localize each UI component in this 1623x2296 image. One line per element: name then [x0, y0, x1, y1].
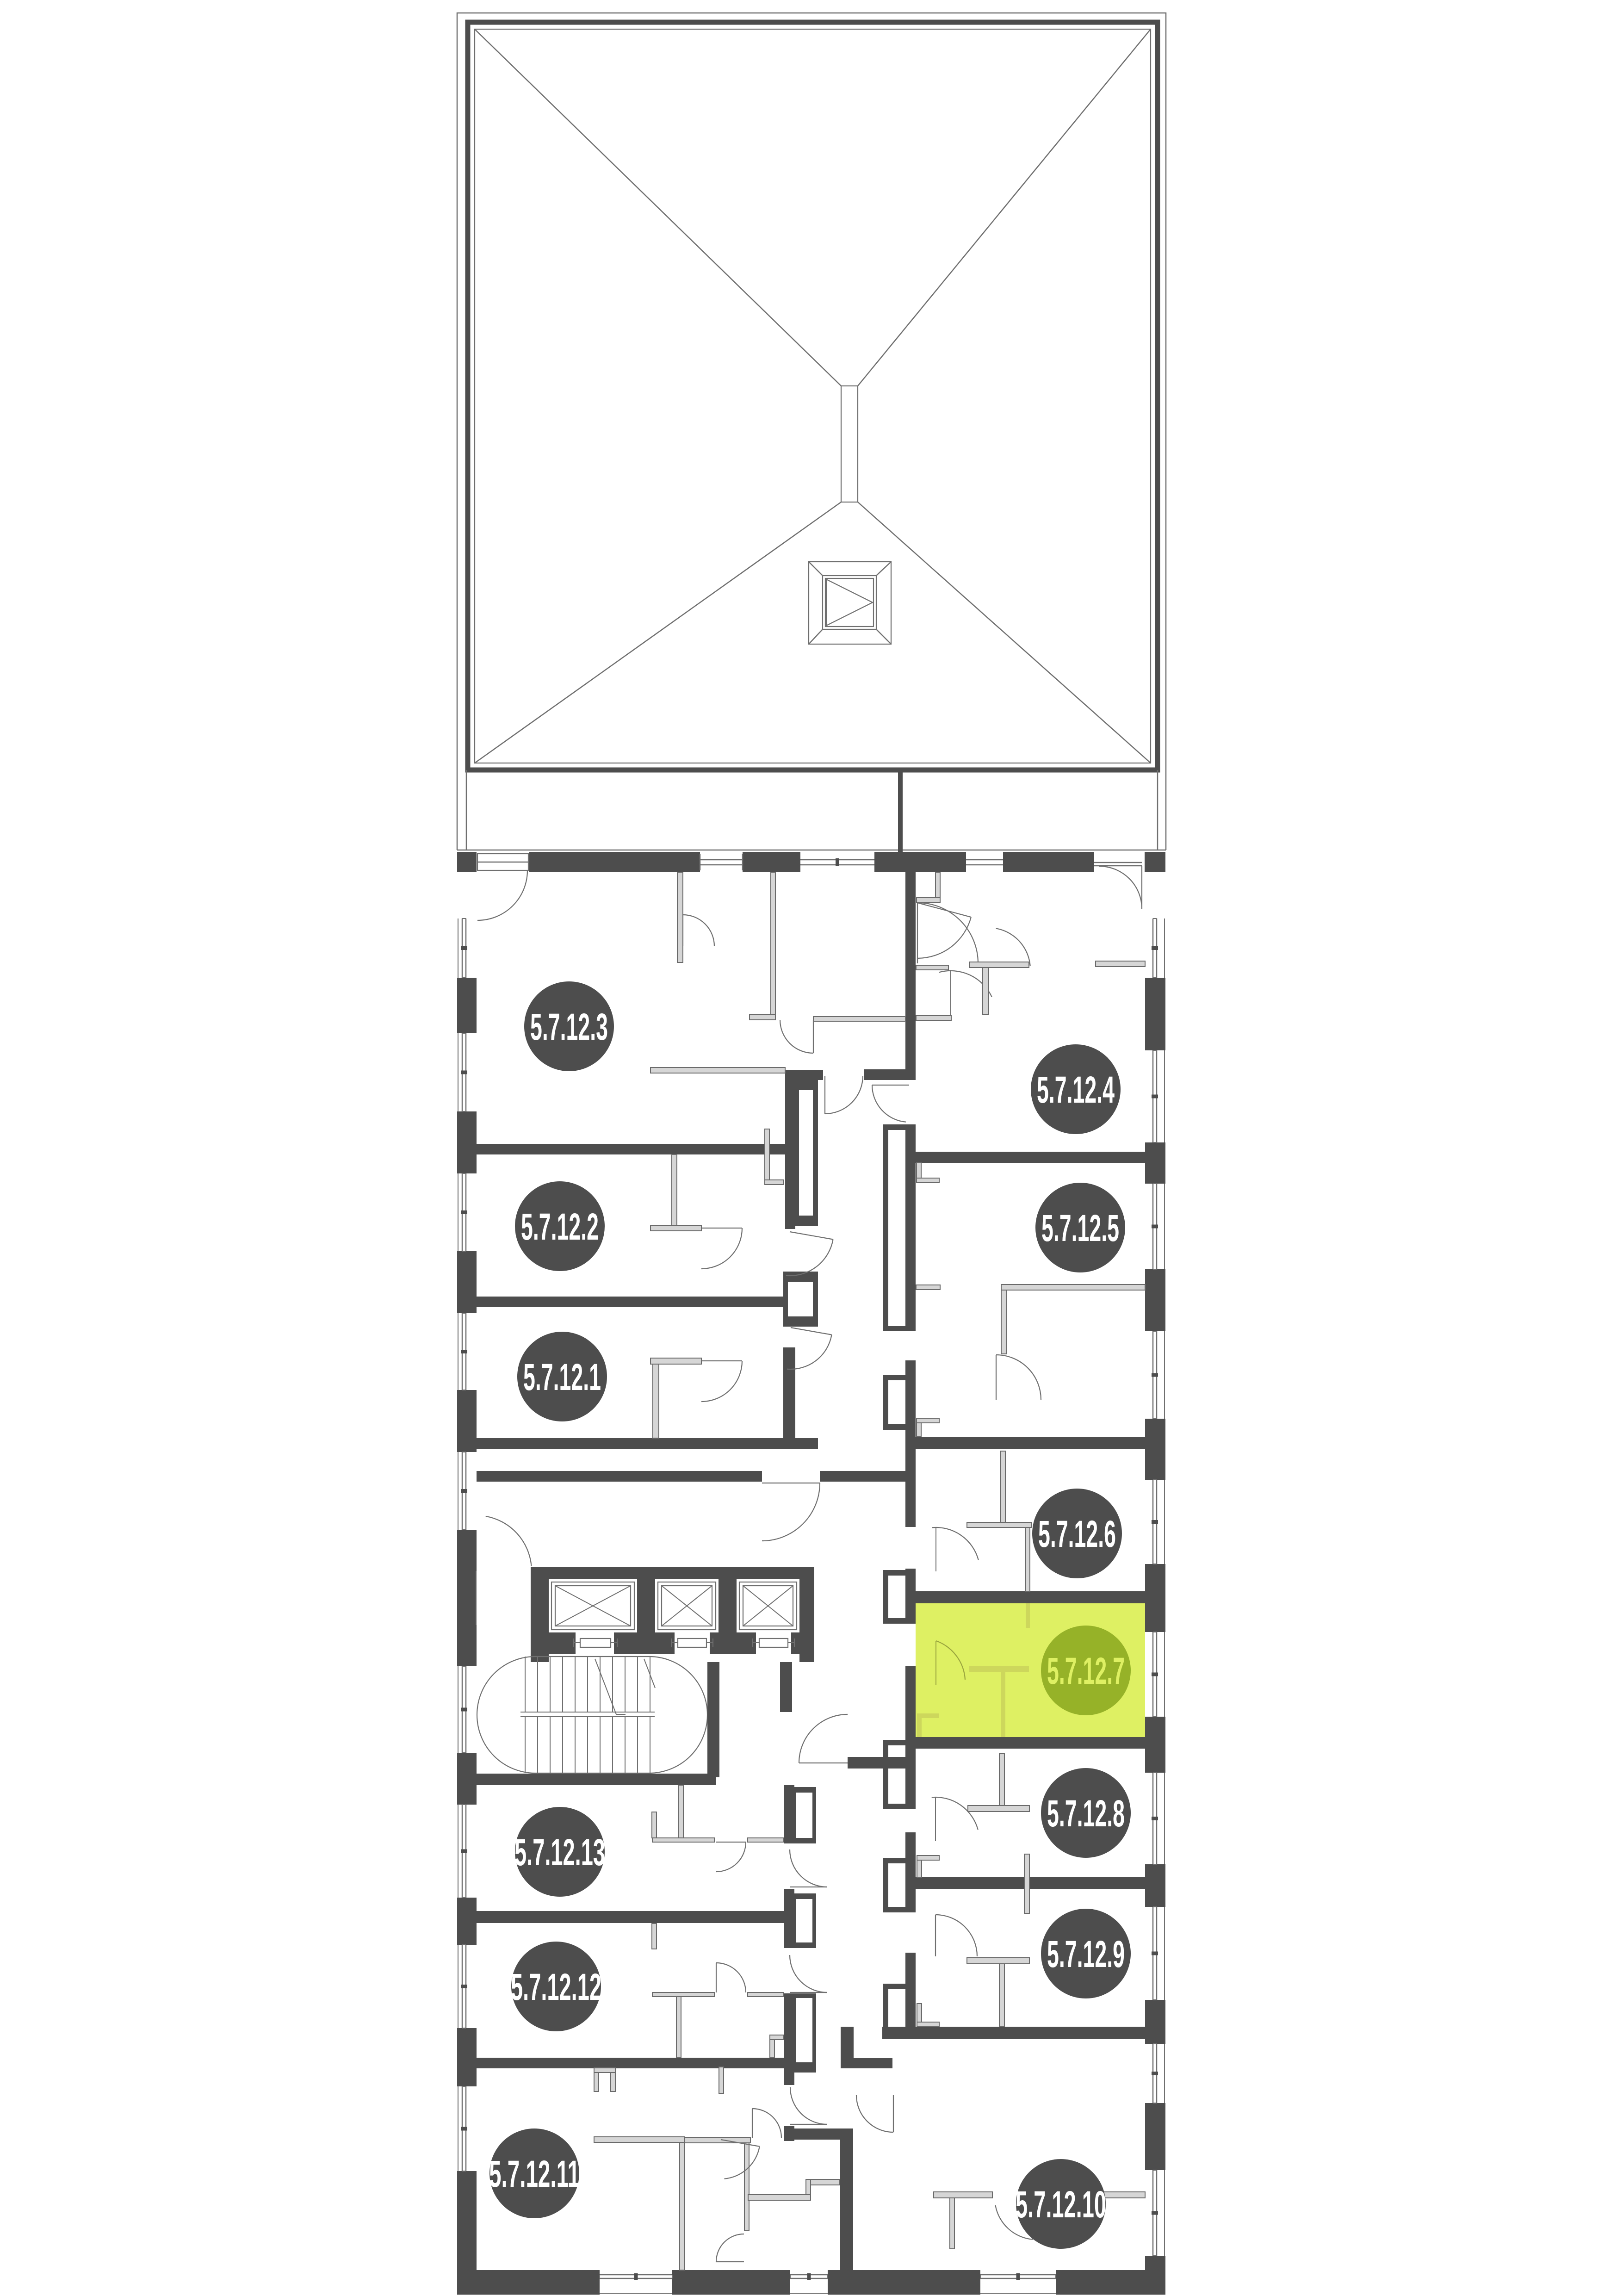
svg-text:5.7.12.8: 5.7.12.8 [1047, 1793, 1125, 1835]
svg-text:5.7.12.4: 5.7.12.4 [1037, 1069, 1115, 1111]
svg-text:5.7.12.11: 5.7.12.11 [489, 2153, 580, 2195]
svg-text:5.7.12.3: 5.7.12.3 [530, 1006, 608, 1048]
svg-text:5.7.12.1: 5.7.12.1 [523, 1356, 601, 1398]
svg-text:5.7.12.7: 5.7.12.7 [1047, 1650, 1125, 1692]
svg-text:5.7.12.12: 5.7.12.12 [511, 1966, 601, 2008]
svg-text:5.7.12.2: 5.7.12.2 [521, 1206, 599, 1248]
svg-text:5.7.12.13: 5.7.12.13 [514, 1831, 605, 1874]
svg-text:5.7.12.6: 5.7.12.6 [1038, 1513, 1116, 1555]
svg-text:5.7.12.10: 5.7.12.10 [1016, 2184, 1106, 2226]
svg-text:5.7.12.5: 5.7.12.5 [1041, 1207, 1119, 1249]
svg-text:5.7.12.9: 5.7.12.9 [1047, 1933, 1125, 1975]
